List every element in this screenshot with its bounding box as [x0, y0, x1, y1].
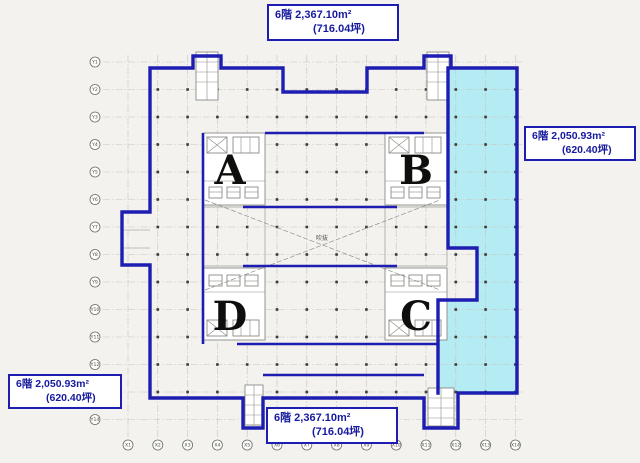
area-label-top-line2: (716.04坪)	[275, 22, 392, 36]
axis-label: X11	[422, 443, 431, 449]
floorplan-page: { "drawing": { "kind": "office-floor-pla…	[0, 0, 640, 463]
area-label-bottom-center: 6階 2,367.10m² (716.04坪)	[266, 407, 398, 444]
axis-label: Y3	[91, 115, 98, 121]
core-a-letter: A	[213, 147, 246, 194]
axis-label: X3	[185, 443, 191, 449]
area-label-right: 6階 2,050.93m² (620.40坪)	[524, 126, 636, 161]
core-b-letter: B	[399, 147, 433, 194]
area-label-right-line2: (620.40坪)	[532, 144, 629, 158]
stair-shaft-top-left	[196, 52, 218, 100]
stair-shaft-bottom-center	[245, 385, 263, 425]
area-label-bottom-left-line2: (620.40坪)	[16, 392, 115, 406]
stair-shaft-top-right	[427, 52, 449, 100]
axis-label: Y5	[91, 170, 98, 176]
area-label-bottom-left: 6階 2,050.93m² (620.40坪)	[8, 374, 122, 409]
axis-label: Y14	[90, 417, 100, 423]
axis-label: Y12	[90, 362, 100, 368]
axis-label: Y6	[91, 197, 98, 203]
stair-shaft-bottom-right	[428, 388, 454, 426]
axis-label: X2	[155, 443, 161, 449]
atrium-void: 吹抜	[205, 200, 440, 290]
axis-label: X1	[125, 443, 131, 449]
axis-label: Y4	[91, 142, 98, 148]
axis-label: Y11	[90, 335, 100, 341]
axis-label: Y7	[91, 225, 98, 231]
core-c-letter: C	[400, 293, 432, 340]
axis-label: X13	[481, 443, 490, 449]
axis-label: Y9	[91, 280, 98, 286]
axis-label: Y8	[91, 252, 98, 258]
atrium-note: 吹抜	[316, 234, 328, 242]
axis-label: Y2	[91, 87, 98, 93]
axis-label: X8	[334, 443, 340, 449]
axis-label: X14	[511, 443, 520, 449]
axis-label: X6	[274, 443, 280, 449]
area-label-top: 6階 2,367.10m² (716.04坪)	[267, 4, 399, 41]
axis-label: X12	[451, 443, 460, 449]
axis-label: X7	[304, 443, 310, 449]
area-label-bottom-center-line2: (716.04坪)	[274, 425, 391, 439]
area-label-right-line1: 6階 2,050.93m²	[532, 130, 629, 144]
core-d-letter: D	[213, 293, 248, 340]
area-label-top-line1: 6階 2,367.10m²	[275, 8, 392, 22]
area-label-bottom-left-line1: 6階 2,050.93m²	[16, 378, 115, 392]
elevator-hall-right	[385, 207, 447, 266]
elevator-hall-left	[203, 207, 265, 266]
axis-label: X9	[363, 443, 369, 449]
axis-label: Y1	[91, 60, 98, 66]
axis-label: X10	[392, 443, 401, 449]
axis-label: Y10	[90, 307, 100, 313]
area-label-bottom-center-line1: 6階 2,367.10m²	[274, 411, 391, 425]
walls-layer: 吹抜	[122, 52, 454, 426]
axis-label: X4	[214, 443, 220, 449]
axis-label: X5	[244, 443, 250, 449]
